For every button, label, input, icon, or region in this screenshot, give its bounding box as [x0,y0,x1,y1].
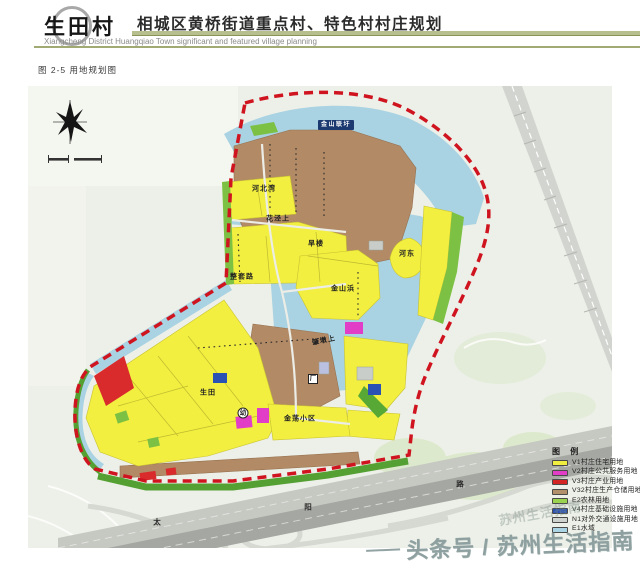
page: 生田村 相城区黄桥街道重点村、特色村村庄规划 Xiangcheng Distri… [0,0,640,569]
legend-item: V3村庄产业用地 [552,479,640,486]
map-label-box: 金山联圩 [318,120,354,130]
legend-label: V2村庄公共服务用地 [572,469,638,476]
map-label-place: 金山浜 [331,286,355,293]
map-label-place: 生田 [200,390,216,397]
legend-label: V1村庄住宅用地 [572,460,624,467]
map-label-place: 河东 [399,251,415,258]
legend-swatch [552,470,568,476]
map-label-road: 太 [153,518,161,526]
legend-item: V1村庄住宅用地 [552,460,640,467]
map-label-road: 路 [456,480,464,488]
legend-item: V32村庄生产仓储用地 [552,489,640,496]
map-label-place: 旱楼 [308,241,324,248]
map-label-badge-square: 厂 [308,374,318,384]
header-divider-line [34,46,640,48]
page-title: 相城区黄桥街道重点村、特色村村庄规划 [137,12,443,34]
page-subtitle-en: Xiangcheng District Huangqiao Town signi… [44,37,317,46]
map-canvas [28,86,612,548]
legend-item: V2村庄公共服务用地 [552,470,640,477]
map-label-road: 阳 [304,503,312,511]
legend-label: V3村庄产业用地 [572,479,624,486]
legend-items: V1村庄住宅用地V2村庄公共服务用地V3村庄产业用地V32村庄生产仓储用地E2农… [552,460,640,533]
map-label-badge-circle: 幼 [238,408,249,419]
map-label-place: 花泾上 [266,216,290,223]
legend-swatch [552,460,568,466]
map-label-place: 河北湾 [252,186,276,193]
map-label-place: 整套路 [230,274,254,281]
legend-title: 图 例 [552,446,640,457]
legend-swatch [552,489,568,495]
land-use-map: 金山联圩河北湾花泾上旱楼河东金山浜整套路肇墩上生田金荡小区幼厂太阳路 [28,86,612,548]
map-label-place: 金荡小区 [284,416,316,423]
legend-label: V32村庄生产仓储用地 [572,488,640,495]
legend-swatch [552,479,568,485]
watermark-line [366,548,400,551]
figure-label: 图 2-5 用地规划图 [38,64,117,76]
